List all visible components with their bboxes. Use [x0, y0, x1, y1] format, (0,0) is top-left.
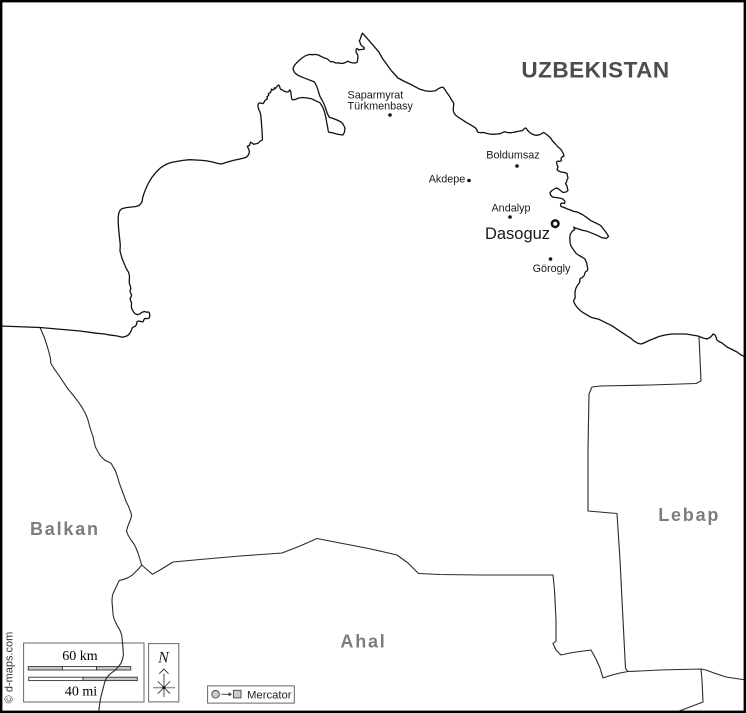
- svg-text:Andalyp: Andalyp: [491, 203, 530, 215]
- svg-text:Boldumsaz: Boldumsaz: [486, 150, 539, 162]
- svg-text:Ahal: Ahal: [340, 632, 386, 652]
- svg-text:N: N: [157, 649, 170, 666]
- svg-text:Türkmenbasy: Türkmenbasy: [348, 100, 414, 112]
- svg-text:Mercator: Mercator: [247, 689, 292, 701]
- svg-text:Görogly: Görogly: [533, 263, 571, 275]
- svg-text:© d-maps.com: © d-maps.com: [4, 632, 16, 704]
- svg-text:Lebap: Lebap: [658, 505, 720, 525]
- svg-text:40 mi: 40 mi: [65, 685, 97, 700]
- svg-text:Balkan: Balkan: [30, 519, 100, 539]
- svg-text:Akdepe: Akdepe: [429, 173, 466, 185]
- svg-text:Dasoguz: Dasoguz: [485, 225, 550, 243]
- svg-text:UZBEKISTAN: UZBEKISTAN: [521, 58, 669, 83]
- svg-text:60 km: 60 km: [62, 649, 98, 664]
